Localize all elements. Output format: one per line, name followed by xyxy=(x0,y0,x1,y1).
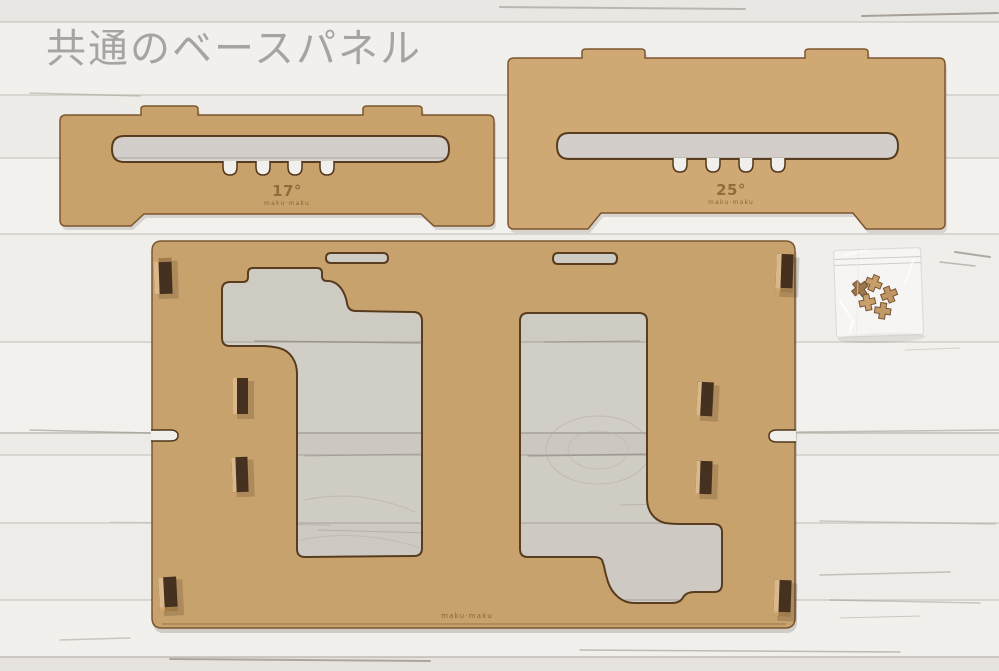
parts-bag xyxy=(834,247,926,344)
peg-notch xyxy=(223,161,237,175)
brand-mark: maku·maku xyxy=(708,199,754,206)
peg-notch xyxy=(256,161,270,175)
standing-tab xyxy=(153,257,178,299)
standing-tab xyxy=(231,457,254,498)
peg-notch xyxy=(673,158,687,172)
brand-mark: maku·maku xyxy=(264,200,310,207)
standing-tab xyxy=(695,461,718,500)
peg-notch xyxy=(706,158,720,172)
peg-notch xyxy=(739,158,753,172)
standing-tab xyxy=(158,576,184,616)
peg-notch xyxy=(320,161,334,175)
standing-tab xyxy=(773,580,797,622)
angle-label-17: 17° xyxy=(272,182,302,200)
angle-panel-17-body xyxy=(60,106,494,226)
product-photo: 17° maku·maku 25° maku·maku maku·maku xyxy=(0,0,999,671)
standing-tab xyxy=(775,254,799,298)
angle-panel-17: 17° maku·maku xyxy=(60,106,494,226)
bag-body xyxy=(834,247,924,337)
right-edge-slit xyxy=(769,430,796,442)
peg-notch xyxy=(288,161,302,175)
left-edge-slit xyxy=(151,430,178,441)
angle-label-25: 25° xyxy=(716,181,746,199)
standing-tab xyxy=(696,382,720,422)
peg-notch xyxy=(771,158,785,172)
photo-title: 共通のベースパネル xyxy=(46,26,422,72)
photo-canvas: 17° maku·maku 25° maku·maku maku·maku xyxy=(0,0,999,671)
brand-mark: maku·maku xyxy=(441,612,493,620)
standing-tab xyxy=(233,378,254,419)
